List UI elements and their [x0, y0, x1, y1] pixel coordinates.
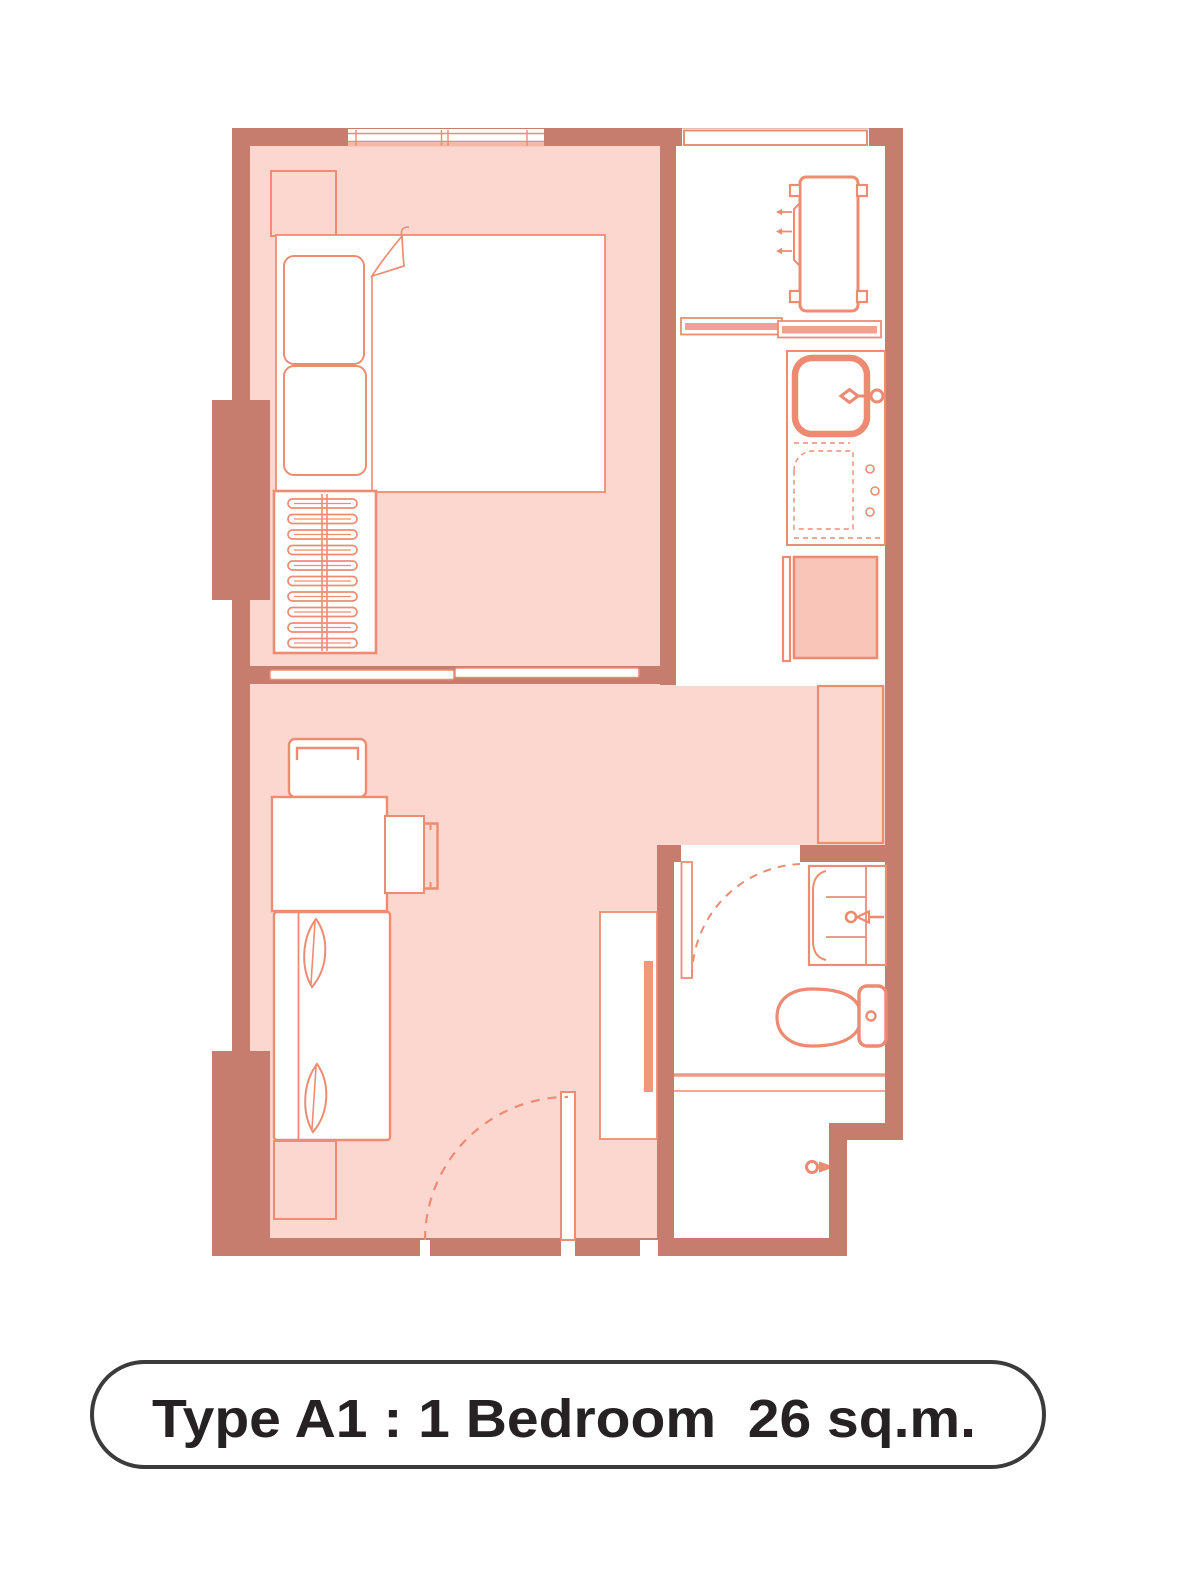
- svg-text:Type A1 : 1 Bedroom 26 sq.m.: Type A1 : 1 Bedroom 26 sq.m.: [152, 1389, 976, 1449]
